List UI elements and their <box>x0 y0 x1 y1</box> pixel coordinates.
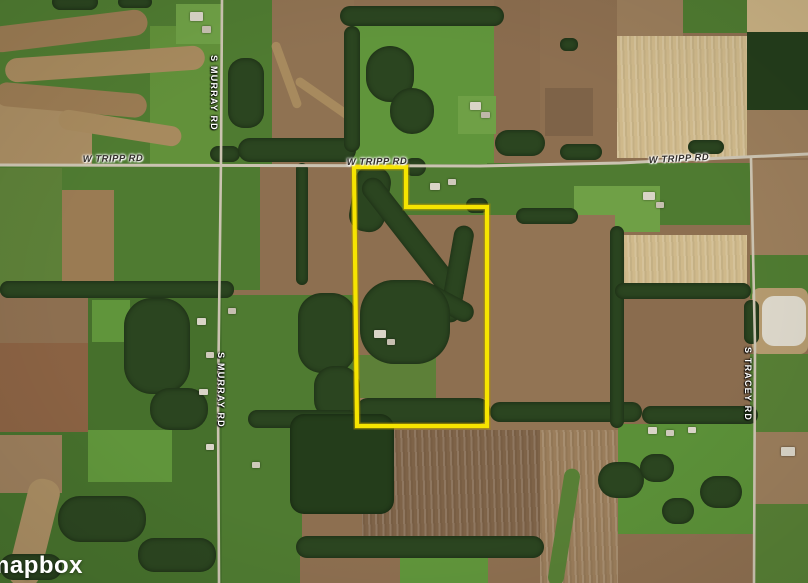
mapbox-attribution: mapbox <box>0 552 83 580</box>
road-label-s-tracey-rd: S TRACEY RD <box>743 347 753 421</box>
road-label-w-tripp-rd: W TRIPP RD <box>83 153 144 165</box>
road-labels-layer: W TRIPP RDW TRIPP RDW TRIPP RDS MURRAY R… <box>0 0 808 583</box>
satellite-map[interactable]: W TRIPP RDW TRIPP RDW TRIPP RDS MURRAY R… <box>0 0 808 583</box>
road-label-s-murray-rd: S MURRAY RD <box>209 55 219 131</box>
road-label-w-tripp-rd: W TRIPP RD <box>648 152 709 166</box>
road-label-s-murray-rd: S MURRAY RD <box>216 352 226 428</box>
road-label-w-tripp-rd: W TRIPP RD <box>347 156 408 168</box>
